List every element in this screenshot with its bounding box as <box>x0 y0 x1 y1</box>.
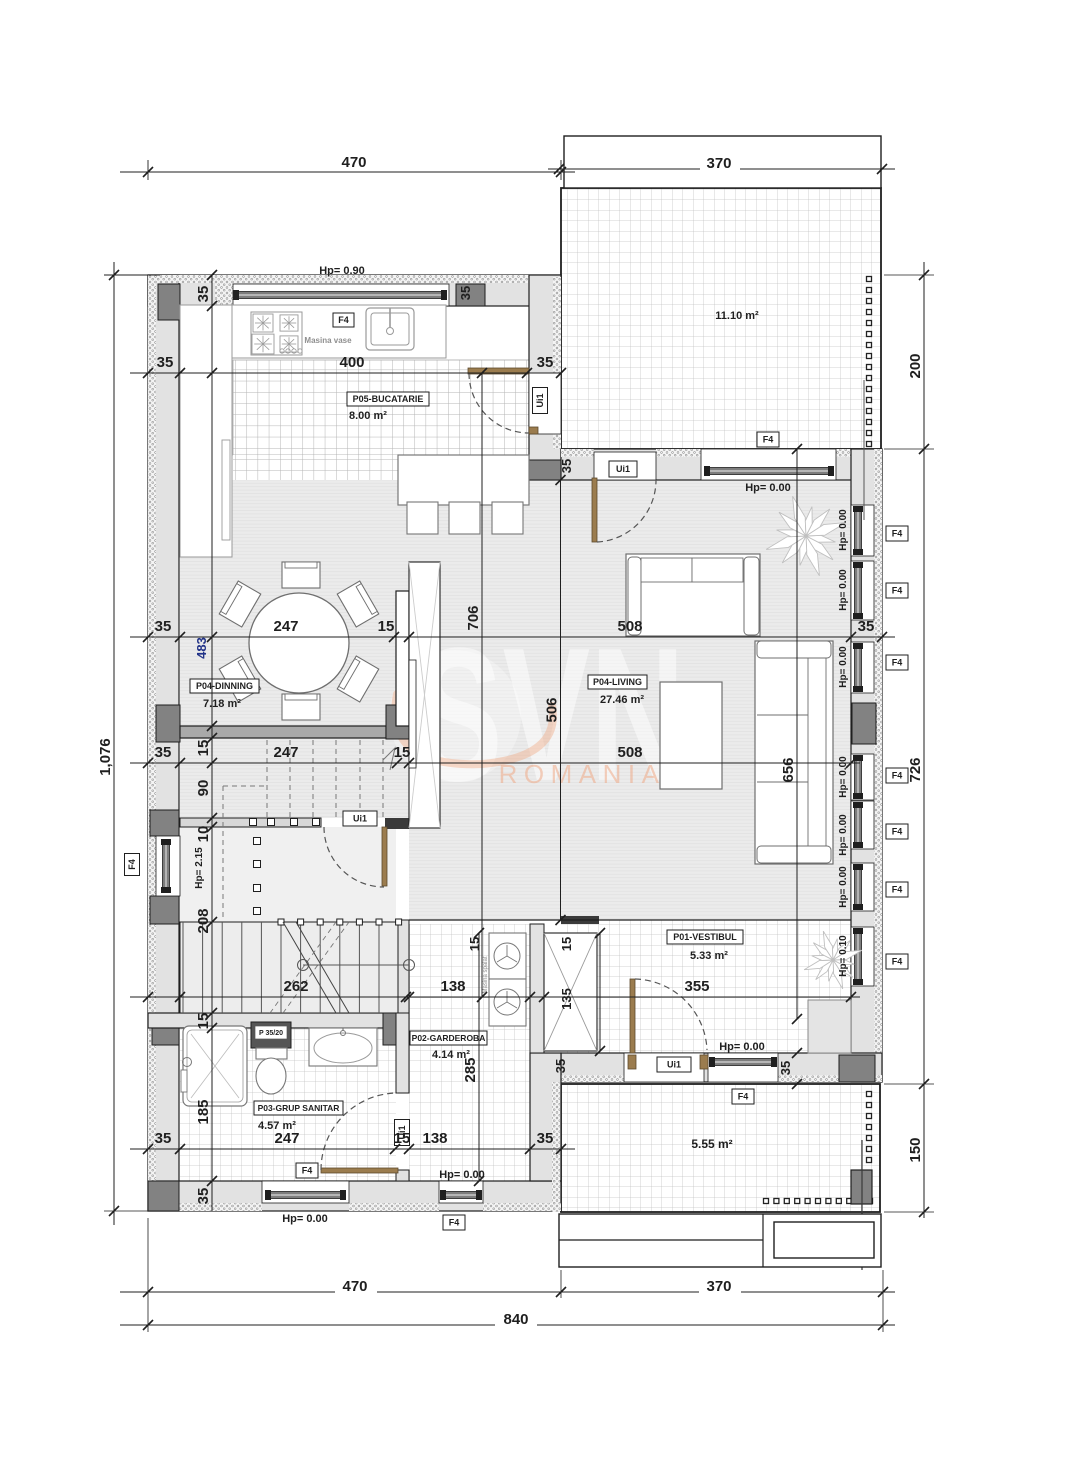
svg-text:35: 35 <box>537 1130 554 1147</box>
svg-text:11.10 m²: 11.10 m² <box>715 310 759 322</box>
svg-text:Hp= 0.10: Hp= 0.10 <box>838 935 849 977</box>
svg-text:F4: F4 <box>892 885 903 895</box>
svg-text:35: 35 <box>157 354 174 371</box>
svg-text:35: 35 <box>559 459 574 473</box>
svg-text:247: 247 <box>273 618 298 635</box>
svg-text:P04-LIVING: P04-LIVING <box>593 677 642 687</box>
svg-text:35: 35 <box>553 1059 568 1073</box>
svg-text:508: 508 <box>617 618 642 635</box>
svg-text:Hp= 0.00: Hp= 0.00 <box>838 866 849 908</box>
svg-text:F4: F4 <box>127 859 137 870</box>
svg-text:35: 35 <box>195 286 212 303</box>
svg-text:F4: F4 <box>302 1166 313 1176</box>
svg-text:Hp= 0.00: Hp= 0.00 <box>282 1213 328 1225</box>
svg-text:F4: F4 <box>892 658 903 668</box>
svg-text:Hp= 0.90: Hp= 0.90 <box>319 265 365 277</box>
svg-text:138: 138 <box>422 1130 447 1147</box>
svg-text:10: 10 <box>195 826 212 843</box>
svg-text:F4: F4 <box>892 771 903 781</box>
svg-text:35: 35 <box>778 1061 793 1075</box>
svg-text:Hp= 0.00: Hp= 0.00 <box>838 569 849 611</box>
svg-text:35: 35 <box>858 618 875 635</box>
svg-text:F4: F4 <box>892 827 903 837</box>
svg-text:15: 15 <box>195 740 212 757</box>
svg-text:F4: F4 <box>892 529 903 539</box>
svg-text:185: 185 <box>195 1099 212 1124</box>
svg-text:15: 15 <box>394 744 411 761</box>
svg-text:1,076: 1,076 <box>97 738 114 776</box>
svg-text:15: 15 <box>467 937 482 951</box>
svg-text:8.00 m²: 8.00 m² <box>349 410 387 422</box>
svg-text:35: 35 <box>155 1130 172 1147</box>
svg-text:Hp= 0.00: Hp= 0.00 <box>838 756 849 798</box>
svg-text:285: 285 <box>462 1057 479 1082</box>
svg-text:P05-BUCATARIE: P05-BUCATARIE <box>353 394 424 404</box>
svg-text:Ui1: Ui1 <box>535 393 545 407</box>
svg-text:Ui1: Ui1 <box>667 1060 681 1070</box>
svg-text:200: 200 <box>907 353 924 378</box>
svg-text:27.46 m²: 27.46 m² <box>600 694 644 706</box>
svg-text:370: 370 <box>706 1278 731 1295</box>
svg-text:840: 840 <box>503 1311 528 1328</box>
svg-text:35: 35 <box>537 354 554 371</box>
svg-text:F4: F4 <box>449 1218 460 1228</box>
svg-text:7.18 m²: 7.18 m² <box>203 698 241 710</box>
svg-text:35: 35 <box>458 286 473 300</box>
svg-text:F4: F4 <box>892 957 903 967</box>
svg-text:35: 35 <box>195 1188 212 1205</box>
svg-text:5.33 m²: 5.33 m² <box>690 950 728 962</box>
svg-text:90: 90 <box>195 780 212 797</box>
svg-text:208: 208 <box>195 908 212 933</box>
svg-text:P01-VESTIBUL: P01-VESTIBUL <box>673 932 737 942</box>
svg-text:470: 470 <box>341 154 366 171</box>
svg-text:656: 656 <box>780 757 797 782</box>
svg-text:Masina spalat: Masina spalat <box>483 956 489 993</box>
svg-text:Hp= 0.00: Hp= 0.00 <box>719 1041 765 1053</box>
svg-text:706: 706 <box>465 605 482 630</box>
svg-text:400: 400 <box>339 354 364 371</box>
svg-text:138: 138 <box>440 978 465 995</box>
svg-text:F4: F4 <box>738 1092 749 1102</box>
svg-text:35: 35 <box>155 618 172 635</box>
svg-text:F4: F4 <box>892 586 903 596</box>
svg-text:P 35/20: P 35/20 <box>259 1030 283 1037</box>
svg-text:5.55 m²: 5.55 m² <box>691 1137 732 1151</box>
svg-text:15: 15 <box>559 937 574 951</box>
svg-text:F4: F4 <box>338 315 349 325</box>
svg-text:Ui1: Ui1 <box>353 814 367 824</box>
svg-text:35: 35 <box>155 744 172 761</box>
svg-text:Hp= 0.00: Hp= 0.00 <box>838 509 849 551</box>
svg-text:15: 15 <box>394 1130 411 1147</box>
svg-text:506: 506 <box>544 697 561 722</box>
svg-text:Ui1: Ui1 <box>616 464 630 474</box>
svg-text:247: 247 <box>274 1130 299 1147</box>
svg-text:P03-GRUP SANITAR: P03-GRUP SANITAR <box>258 1103 340 1113</box>
svg-text:Hp= 0.00: Hp= 0.00 <box>838 646 849 688</box>
svg-text:483: 483 <box>194 637 209 659</box>
svg-text:Hp= 0.00: Hp= 0.00 <box>439 1169 485 1181</box>
svg-text:247: 247 <box>273 744 298 761</box>
svg-text:135: 135 <box>559 988 574 1010</box>
svg-text:15: 15 <box>378 618 395 635</box>
svg-text:262: 262 <box>283 978 308 995</box>
svg-text:Hp= 0.00: Hp= 0.00 <box>838 814 849 856</box>
svg-text:508: 508 <box>617 744 642 761</box>
svg-text:Hp= 0.00: Hp= 0.00 <box>745 482 791 494</box>
svg-text:470: 470 <box>342 1278 367 1295</box>
svg-text:150: 150 <box>907 1137 924 1162</box>
svg-text:15: 15 <box>195 1013 212 1030</box>
svg-text:Hp= 2.15: Hp= 2.15 <box>194 847 205 889</box>
svg-text:370: 370 <box>706 155 731 172</box>
svg-text:355: 355 <box>684 978 709 995</box>
svg-text:F4: F4 <box>763 435 774 445</box>
svg-text:P02-GARDEROBA: P02-GARDEROBA <box>412 1033 486 1043</box>
svg-text:726: 726 <box>907 757 924 782</box>
svg-text:P04-DINNING: P04-DINNING <box>196 681 253 691</box>
svg-text:Masina vase: Masina vase <box>304 336 352 345</box>
